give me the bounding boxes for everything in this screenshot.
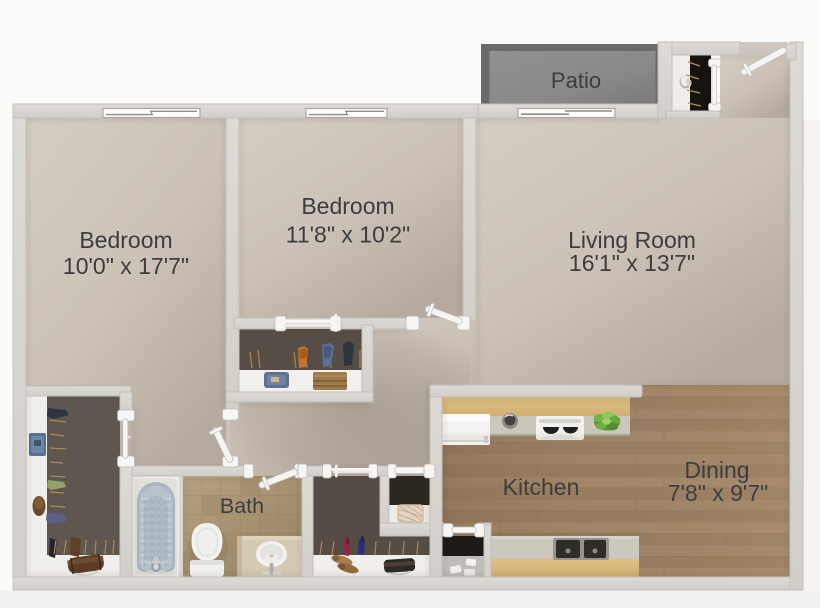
svg-text:Kitchen: Kitchen bbox=[503, 474, 580, 500]
svg-text:Bedroom: Bedroom bbox=[301, 193, 394, 219]
svg-text:Bedroom: Bedroom bbox=[79, 227, 172, 253]
svg-text:Bath: Bath bbox=[220, 494, 264, 518]
svg-text:10'0" x 17'7": 10'0" x 17'7" bbox=[63, 253, 189, 279]
svg-text:Patio: Patio bbox=[551, 68, 601, 93]
svg-text:7'8" x 9'7": 7'8" x 9'7" bbox=[668, 480, 769, 506]
svg-text:11'8" x 10'2": 11'8" x 10'2" bbox=[286, 222, 410, 248]
svg-text:16'1" x 13'7": 16'1" x 13'7" bbox=[569, 250, 695, 276]
